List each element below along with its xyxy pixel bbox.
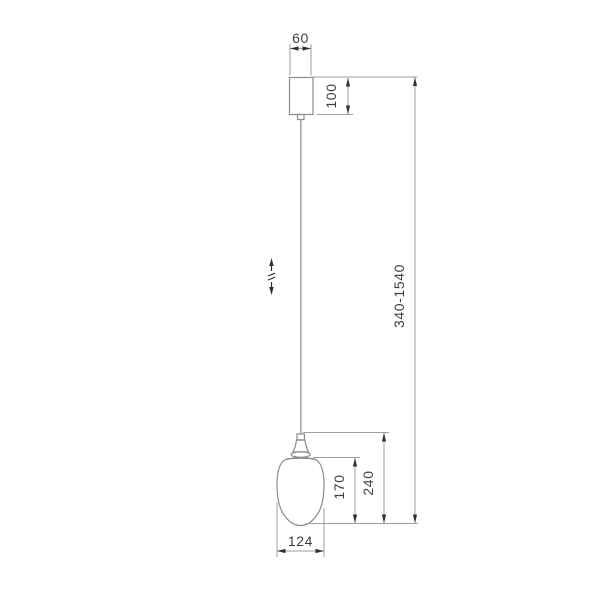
dim-label-fixture-height: 240 <box>360 470 376 495</box>
cable-grip <box>298 115 305 120</box>
arrow-overall-bottom <box>413 515 417 524</box>
ceiling-canopy <box>290 78 314 115</box>
arrow-100-top <box>346 78 350 87</box>
arrow-60-right <box>303 46 312 50</box>
arrow-170-bottom <box>353 515 357 524</box>
socket-cone <box>293 440 309 452</box>
arrow-100-bottom <box>346 106 350 115</box>
dim-label-shade-height: 170 <box>331 474 347 499</box>
arrow-240-bottom <box>382 515 386 524</box>
pendant-lamp-dimension-drawing: 60 100 340-1540 170 240 124 <box>0 0 600 600</box>
arrow-124-left <box>277 549 286 553</box>
dim-label-shade-width: 124 <box>288 533 313 549</box>
arrow-170-top <box>353 458 357 467</box>
drawing-canvas: 60 100 340-1540 170 240 124 <box>0 0 600 600</box>
arrow-240-top <box>382 433 386 442</box>
arrow-overall-top <box>413 78 417 87</box>
lamp-outline <box>277 78 324 526</box>
arrow-60-left <box>290 46 299 50</box>
dim-label-overall-height: 340-1540 <box>391 264 407 328</box>
socket-nub <box>297 434 305 440</box>
glass-shade <box>277 458 324 525</box>
dim-label-canopy-height: 100 <box>323 83 339 108</box>
height-adjust-icon <box>268 258 275 295</box>
dim-label-canopy-width: 60 <box>292 30 309 46</box>
arrow-124-right <box>316 549 325 553</box>
